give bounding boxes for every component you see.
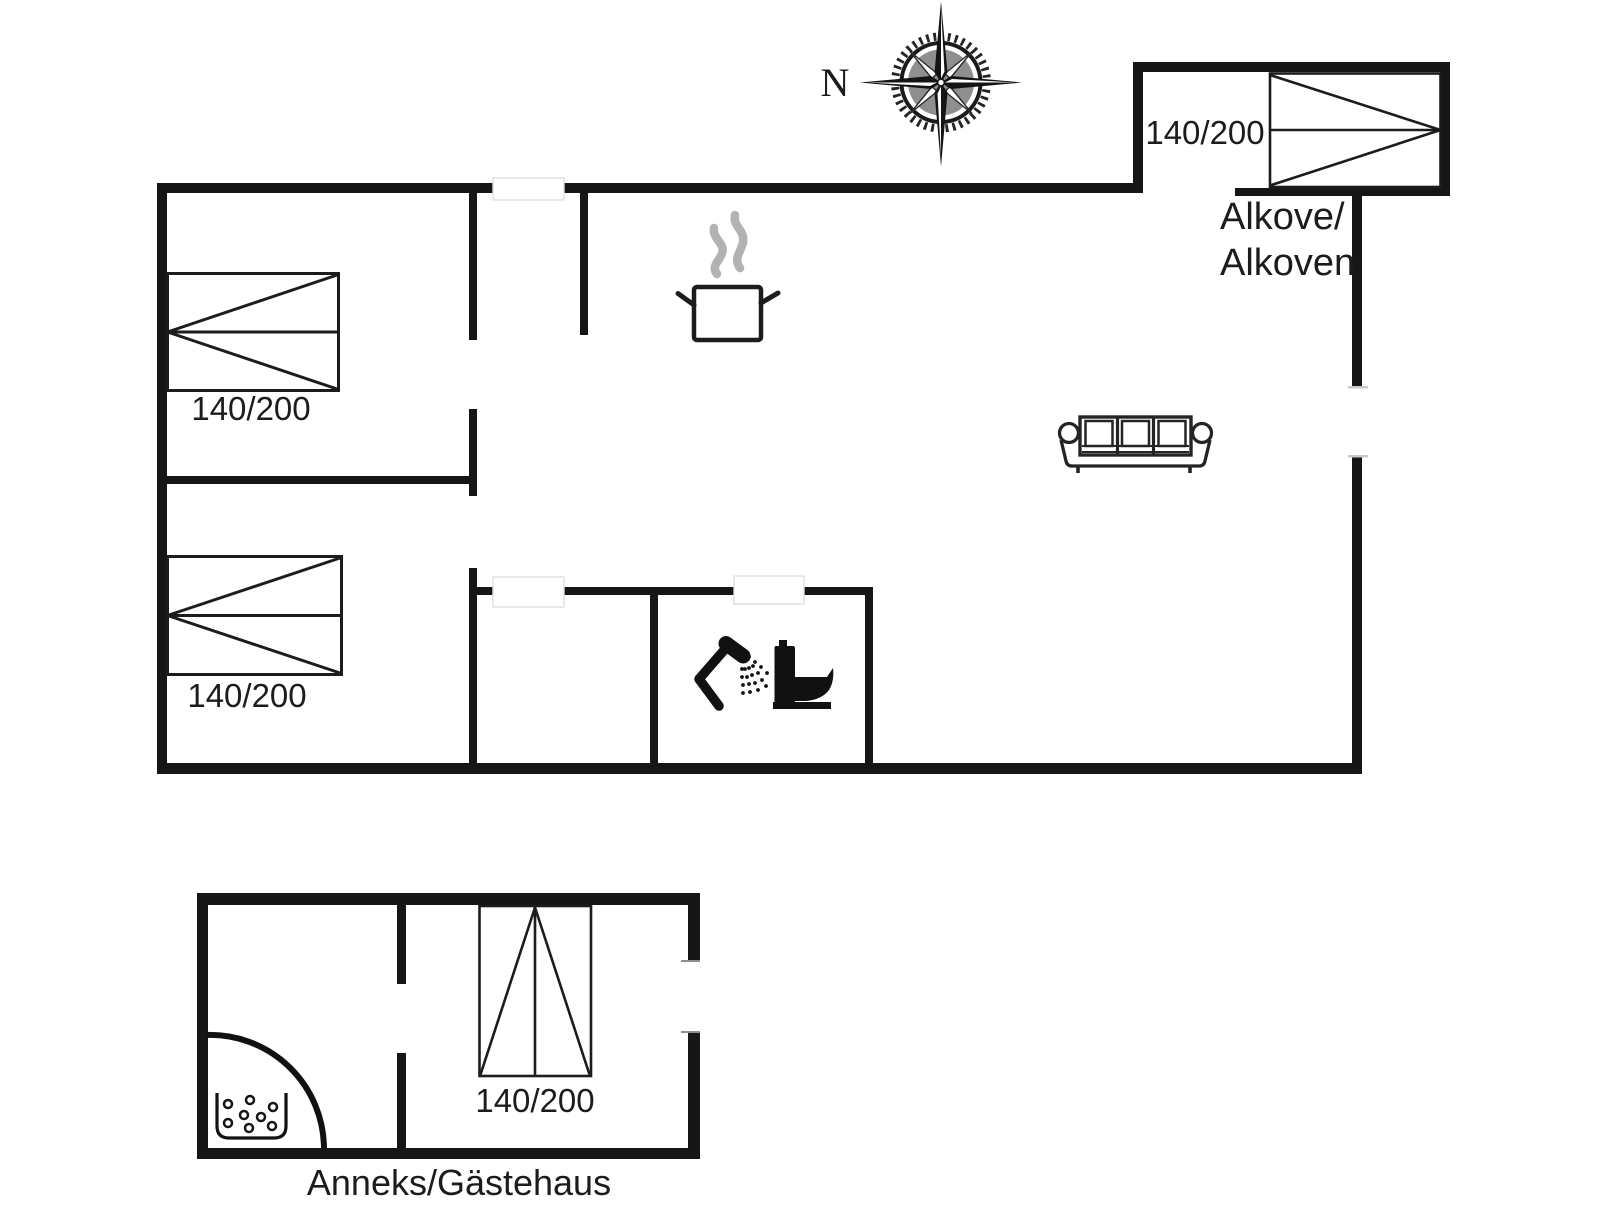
svg-text:N: N bbox=[821, 60, 850, 105]
svg-text:140/200: 140/200 bbox=[191, 390, 310, 427]
svg-text:140/200: 140/200 bbox=[187, 677, 306, 714]
svg-text:140/200: 140/200 bbox=[475, 1082, 594, 1119]
svg-text:140/200: 140/200 bbox=[1145, 114, 1264, 151]
svg-text:Anneks/Gästehaus: Anneks/Gästehaus bbox=[307, 1162, 611, 1203]
svg-text:Alkoven: Alkoven bbox=[1220, 242, 1355, 284]
svg-text:Alkove/: Alkove/ bbox=[1220, 196, 1345, 238]
